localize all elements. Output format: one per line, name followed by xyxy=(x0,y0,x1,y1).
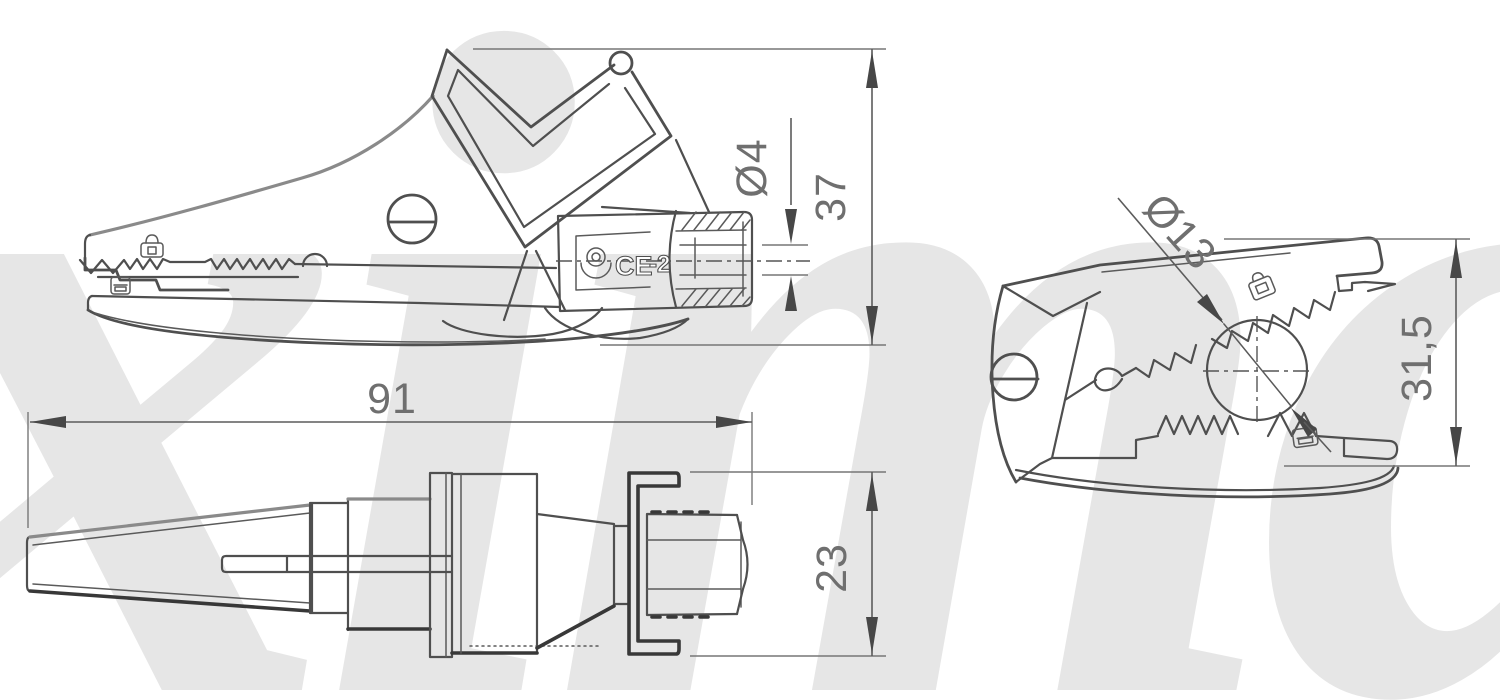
dim-label-91: 91 xyxy=(367,375,417,423)
watermark-text: xima xyxy=(0,0,1500,700)
dim-label-o4: Ø4 xyxy=(728,138,776,197)
dim-label-31-5: 31,5 xyxy=(1393,314,1441,402)
ce-text: CE xyxy=(615,251,653,281)
ce-suffix-text: -2 xyxy=(649,251,670,278)
technical-drawing-svg: xima xyxy=(0,0,1500,700)
drawing-canvas: xima xyxy=(0,0,1500,700)
dim-label-23: 23 xyxy=(808,543,856,593)
dim-label-37: 37 xyxy=(807,172,855,222)
